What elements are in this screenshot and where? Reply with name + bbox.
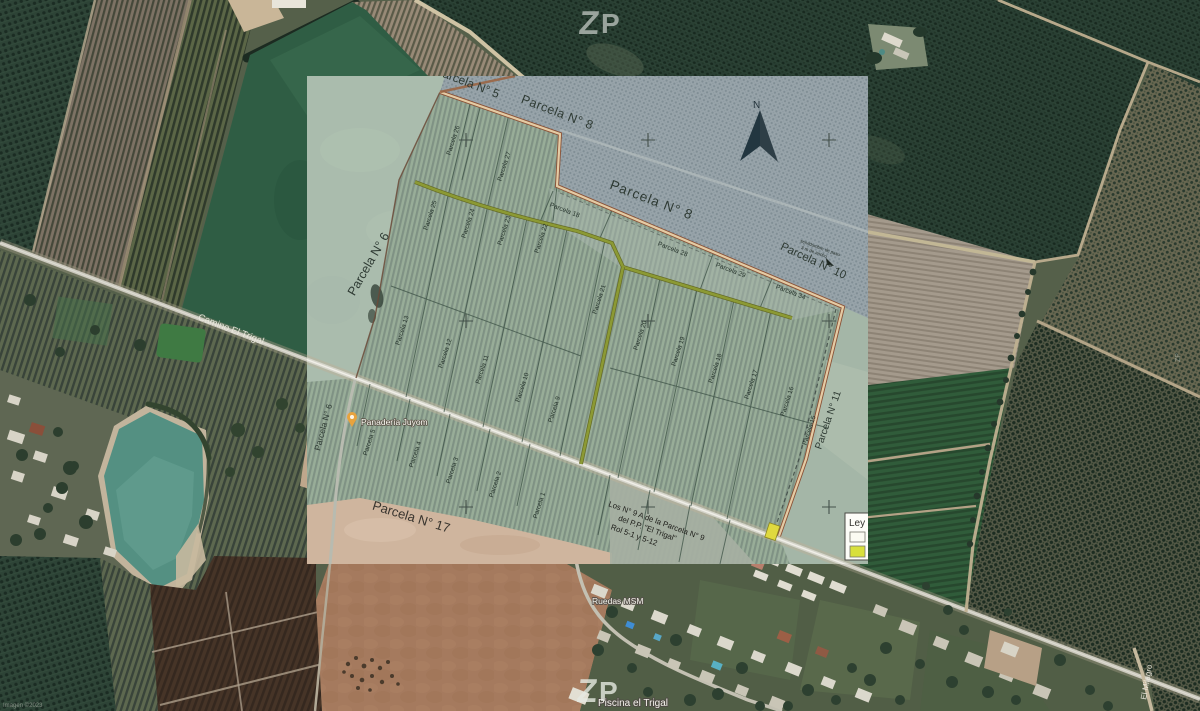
svg-text:Z: Z [575, 673, 599, 710]
svg-text:Ruedas MSM: Ruedas MSM [592, 596, 644, 606]
svg-text:Panadería Juyom: Panadería Juyom [361, 417, 428, 427]
svg-text:Imagen ©2023: Imagen ©2023 [3, 702, 43, 709]
svg-text:P: P [601, 8, 620, 39]
svg-text:ZP: ZP [1175, 353, 1182, 362]
svg-text:Z: Z [577, 5, 601, 42]
svg-text:N: N [753, 100, 760, 111]
svg-text:Ley: Ley [849, 518, 865, 529]
svg-text:P: P [599, 676, 618, 707]
